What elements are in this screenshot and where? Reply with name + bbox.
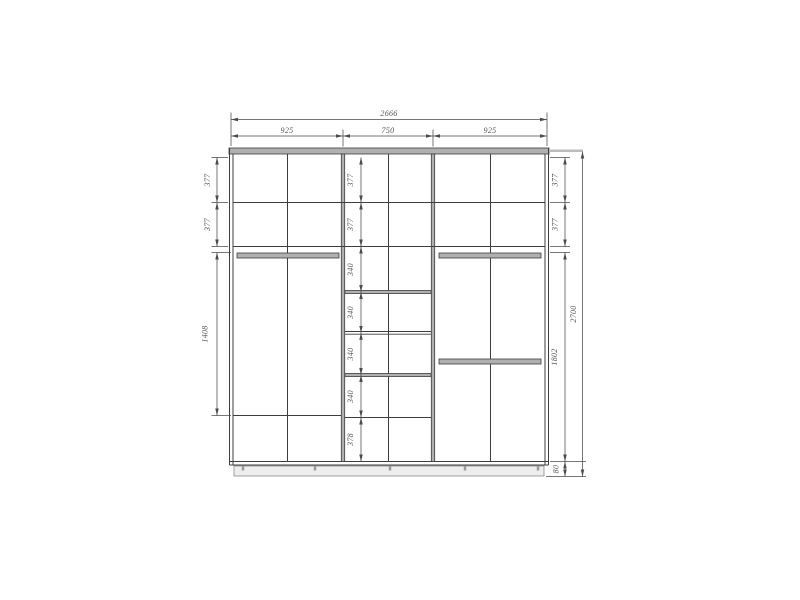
center-shelf-2 — [345, 374, 431, 377]
cabinet-outline — [229, 148, 583, 476]
drawing-canvas: 2666 925 750 925 377 377 1408 377 377 34… — [0, 0, 800, 600]
dim-section-center: 750 — [382, 126, 395, 135]
right-shelf — [439, 359, 541, 364]
dim-center-row3: 340 — [346, 263, 355, 277]
dim-plinth-height: 80 — [552, 465, 561, 474]
wardrobe-technical-drawing: 2666 925 750 925 377 377 1408 377 377 34… — [0, 0, 800, 600]
top-panel — [229, 148, 549, 154]
dim-center-row6: 340 — [346, 390, 355, 404]
dimension-lines — [212, 113, 587, 477]
dim-right-row2: 377 — [551, 217, 560, 232]
top-extension-strip — [549, 150, 583, 153]
dim-right-lower: 1802 — [550, 348, 559, 365]
shelves-and-rods — [233, 253, 541, 418]
left-hanging-rod — [237, 253, 339, 258]
right-hanging-rod — [439, 253, 541, 258]
dim-center-row4: 340 — [346, 306, 355, 320]
dim-center-row2: 377 — [346, 217, 355, 232]
dim-left-hanging: 1408 — [201, 325, 210, 342]
dim-left-row1: 377 — [203, 173, 212, 188]
dim-overall-height: 2700 — [569, 305, 578, 322]
partition-left — [341, 154, 344, 462]
dim-section-right: 925 — [484, 126, 497, 135]
dim-section-left: 925 — [281, 126, 294, 135]
partition-right — [431, 154, 434, 462]
dim-center-row7: 378 — [346, 433, 355, 447]
dim-overall-width: 2666 — [380, 109, 397, 118]
dim-right-row1: 377 — [551, 173, 560, 188]
dim-center-row1: 377 — [346, 173, 355, 188]
dim-center-row5: 340 — [346, 348, 355, 362]
center-shelf-1 — [345, 291, 431, 294]
dim-left-row2: 377 — [203, 217, 212, 232]
